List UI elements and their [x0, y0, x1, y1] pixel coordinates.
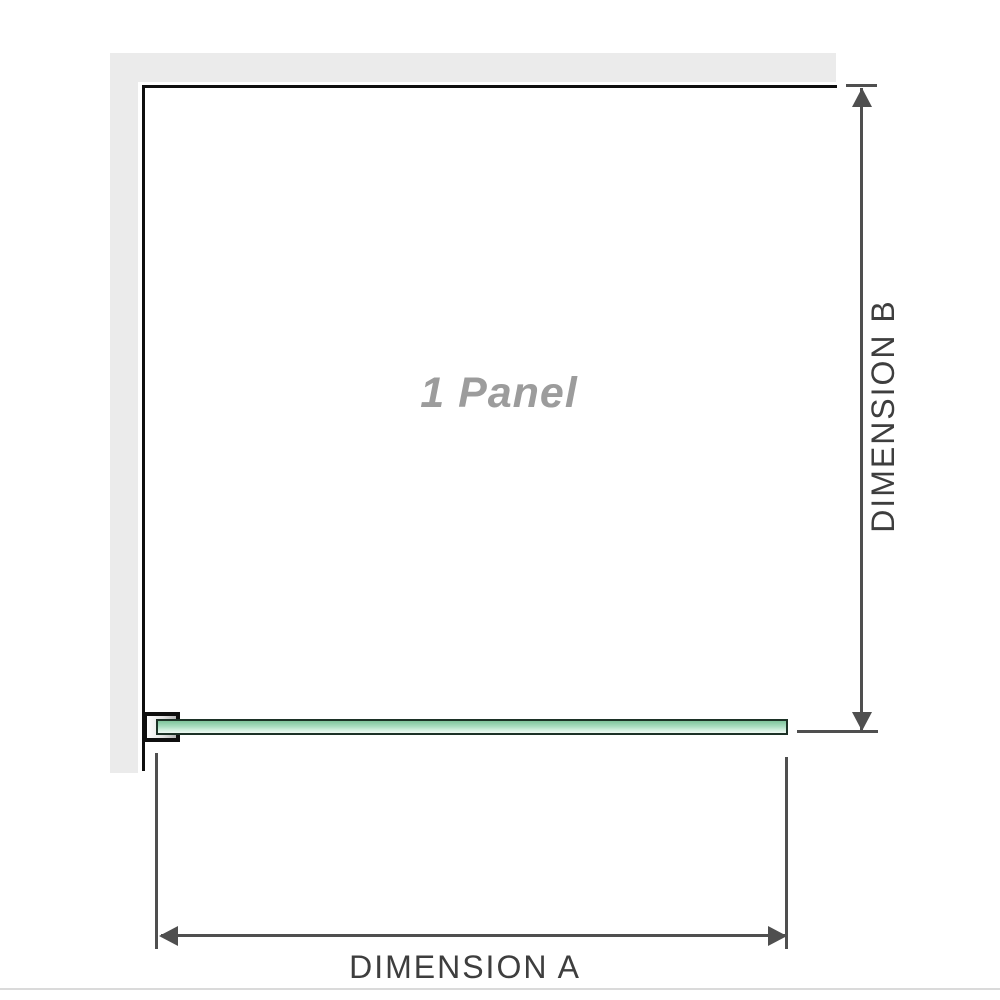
- panel-outline-top: [142, 85, 837, 88]
- wall-top: [110, 53, 836, 82]
- dimension-a-label: DIMENSION A: [290, 949, 640, 986]
- panel-outline-left: [142, 85, 145, 771]
- panel-count-label: 1 Panel: [369, 369, 629, 418]
- dimension-b-line: [860, 88, 863, 731]
- arrow-left-icon: [159, 926, 178, 946]
- dimension-b-label: DIMENSION B: [865, 241, 899, 591]
- shower-panel-dimension-diagram: 1 Panel DIMENSION B DIMENSION A: [0, 0, 1000, 1000]
- extension-line-right: [785, 757, 788, 949]
- wall-left: [110, 53, 138, 773]
- dimension-a-line: [161, 934, 785, 937]
- arrow-right-icon: [768, 926, 787, 946]
- extension-line-left: [155, 753, 158, 949]
- baseline-rule: [0, 988, 1000, 990]
- dimension-b-tick-top: [846, 84, 877, 87]
- arrow-down-icon: [852, 712, 872, 731]
- arrow-up-icon: [852, 88, 872, 107]
- glass-panel: [156, 719, 788, 735]
